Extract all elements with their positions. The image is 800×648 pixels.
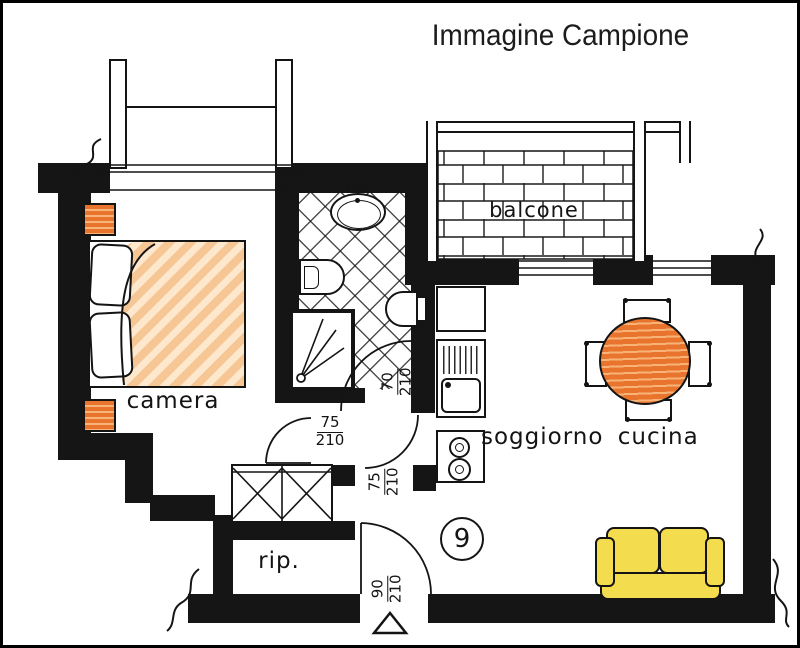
tap-dot bbox=[364, 187, 369, 192]
dim-living-door: 75 210 bbox=[367, 459, 401, 505]
room-label-living-kitchen: soggiorno cucina bbox=[481, 424, 686, 450]
washbasin-inner bbox=[337, 200, 381, 229]
kitchen-tap-dot bbox=[445, 382, 451, 388]
railing-post-right bbox=[275, 59, 293, 169]
wall-storage-left bbox=[213, 515, 233, 603]
wall-bottom-left bbox=[188, 594, 360, 623]
page-title: Immagine Campione bbox=[432, 19, 665, 53]
chair bbox=[688, 341, 711, 387]
entrance-marker-triangle bbox=[374, 613, 406, 633]
shower bbox=[289, 309, 355, 391]
sofa-seat bbox=[600, 572, 721, 600]
sofa-arm bbox=[705, 537, 725, 587]
burner bbox=[449, 437, 470, 458]
kitchen-counter bbox=[436, 286, 486, 332]
nightstand bbox=[83, 203, 116, 236]
apartment-number-badge: 9 bbox=[440, 517, 484, 561]
wall-break bbox=[773, 559, 789, 627]
tap-dot bbox=[355, 186, 360, 191]
dim-bedroom-door: 75 210 bbox=[307, 415, 353, 449]
floorplan-canvas: Immagine Campione bbox=[0, 0, 800, 648]
room-label-bedroom: camera bbox=[113, 388, 233, 414]
kitchen-drainboard bbox=[443, 346, 480, 374]
tap-dot bbox=[355, 198, 360, 203]
wall-step-c bbox=[150, 495, 215, 521]
toilet-bowl bbox=[385, 291, 418, 327]
pillow bbox=[88, 243, 133, 307]
balcony-divider-post bbox=[679, 121, 691, 163]
wardrobe bbox=[231, 464, 333, 523]
wall-stub-storage bbox=[331, 465, 355, 486]
wall-bottom-right bbox=[428, 594, 775, 623]
burner bbox=[448, 458, 471, 481]
sofa-arm bbox=[595, 537, 615, 587]
wall-stub-kitchen bbox=[413, 465, 436, 491]
balcony-rail-top bbox=[426, 121, 691, 133]
balcony-rail-left bbox=[426, 121, 438, 261]
room-label-balcony: balcone bbox=[474, 198, 594, 222]
wall-living-top-3 bbox=[711, 255, 775, 285]
bed-blanket bbox=[122, 242, 244, 386]
bedroom-door-arc bbox=[266, 418, 311, 463]
wall-step-a bbox=[58, 433, 153, 460]
dim-entrance-door: 90 210 bbox=[370, 566, 404, 612]
apartment-number: 9 bbox=[454, 524, 471, 554]
room-label-storage: rip. bbox=[239, 548, 319, 574]
dim-bathroom-door: 70 210 bbox=[380, 359, 414, 405]
pillow bbox=[88, 311, 133, 379]
bidet-inner bbox=[304, 266, 319, 289]
railing-post-left bbox=[109, 59, 127, 169]
wall-step-b bbox=[125, 458, 153, 503]
sofa-back-cushion bbox=[659, 527, 709, 574]
wall-right bbox=[743, 281, 771, 623]
dining-table bbox=[599, 317, 691, 405]
tap-dot bbox=[346, 187, 351, 192]
wall-storage-top bbox=[231, 521, 355, 540]
balcony-rail-right bbox=[633, 121, 646, 261]
nightstand bbox=[83, 399, 116, 432]
